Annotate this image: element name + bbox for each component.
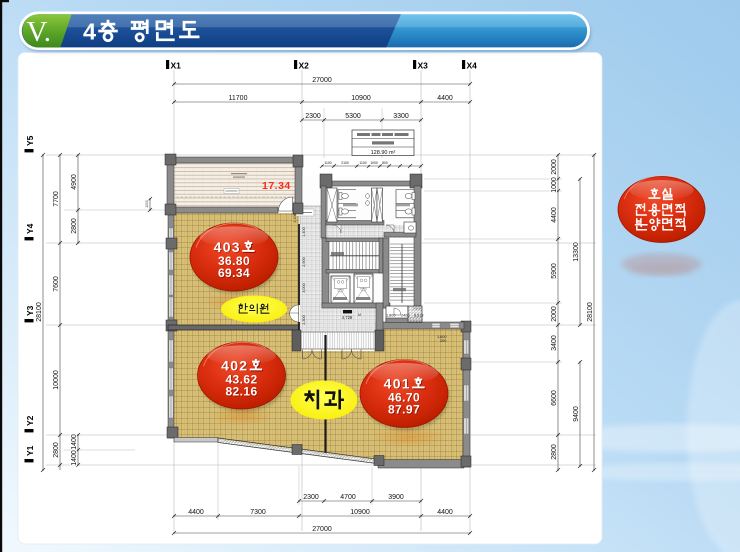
svg-text:2800: 2800 — [53, 442, 60, 458]
svg-text:2300: 2300 — [303, 494, 319, 501]
svg-text:1,100: 1,100 — [293, 213, 297, 223]
svg-text:4400: 4400 — [188, 509, 204, 516]
svg-text:1400: 1400 — [71, 434, 78, 450]
svg-text:27000: 27000 — [312, 77, 332, 84]
svg-text:5900: 5900 — [551, 263, 558, 279]
svg-text:Y3: Y3 — [25, 305, 35, 316]
svg-text:17.34: 17.34 — [262, 180, 291, 192]
svg-text:4400: 4400 — [437, 95, 453, 102]
svg-text:2000: 2000 — [551, 306, 558, 322]
svg-text:28100: 28100 — [587, 302, 594, 322]
svg-text:Y2: Y2 — [25, 415, 35, 426]
svg-text:1000: 1000 — [370, 161, 378, 165]
svg-text:2800: 2800 — [71, 218, 78, 234]
svg-text:3400: 3400 — [551, 335, 558, 351]
svg-text:1100: 1100 — [359, 161, 366, 165]
svg-text:9400: 9400 — [573, 406, 580, 422]
svg-text:6600: 6600 — [551, 390, 558, 406]
svg-text:800: 800 — [382, 161, 388, 165]
svg-text:3900: 3900 — [388, 494, 404, 501]
svg-text:4400: 4400 — [551, 207, 558, 223]
svg-text:10900: 10900 — [350, 509, 370, 516]
svg-text:2,300: 2,300 — [302, 315, 306, 325]
svg-text:4400: 4400 — [437, 509, 453, 516]
svg-text:10000: 10000 — [53, 370, 60, 390]
svg-text:Y1: Y1 — [25, 445, 35, 456]
svg-text:X1: X1 — [171, 61, 182, 71]
svg-text:2100: 2100 — [341, 161, 349, 165]
svg-text:4700: 4700 — [340, 494, 356, 501]
svg-text:11700: 11700 — [229, 95, 248, 102]
svg-text:10900: 10900 — [351, 95, 371, 102]
svg-text:2000: 2000 — [551, 159, 558, 175]
svg-text:128.90 m²: 128.90 m² — [371, 150, 396, 156]
svg-text:X4: X4 — [467, 61, 478, 71]
svg-text:401: 401 — [384, 375, 411, 391]
svg-text:2300: 2300 — [305, 113, 321, 120]
svg-text:402: 402 — [221, 357, 248, 373]
svg-text:13300: 13300 — [573, 242, 580, 262]
svg-text:3,000: 3,000 — [302, 283, 306, 293]
svg-text:200: 200 — [440, 339, 446, 343]
svg-text:82.16: 82.16 — [225, 385, 257, 399]
svg-text:M: M — [358, 313, 361, 317]
svg-text:X2: X2 — [299, 61, 310, 71]
svg-text:5300: 5300 — [345, 113, 361, 120]
svg-text:Y4: Y4 — [25, 223, 35, 234]
svg-text:2400: 2400 — [401, 314, 409, 318]
svg-text:1,800: 1,800 — [386, 314, 396, 318]
svg-text:2800: 2800 — [551, 444, 558, 460]
svg-text:2,900: 2,900 — [302, 257, 306, 267]
svg-text:1,400: 1,400 — [302, 227, 306, 237]
svg-text:V.: V. — [27, 16, 51, 48]
svg-text:4,728: 4,728 — [342, 315, 353, 320]
svg-text:7600: 7600 — [53, 276, 60, 292]
svg-text:8,518: 8,518 — [414, 314, 424, 318]
svg-text:28100: 28100 — [36, 302, 43, 322]
svg-text:27000: 27000 — [312, 526, 332, 533]
svg-text:X3: X3 — [418, 61, 429, 71]
svg-text:69.34: 69.34 — [218, 266, 250, 280]
svg-text:3300: 3300 — [393, 113, 409, 120]
svg-text:403: 403 — [214, 239, 241, 255]
svg-text:Y5: Y5 — [25, 135, 35, 146]
svg-text:7300: 7300 — [250, 509, 266, 516]
svg-text:7700: 7700 — [53, 191, 60, 207]
svg-text:87.97: 87.97 — [388, 403, 420, 417]
svg-text:1400: 1400 — [71, 450, 78, 466]
svg-text:4: 4 — [83, 19, 96, 45]
svg-text:1000: 1000 — [145, 200, 149, 208]
svg-text:1100: 1100 — [324, 161, 331, 165]
svg-text:4900: 4900 — [71, 174, 78, 190]
svg-text:1000: 1000 — [551, 177, 558, 193]
